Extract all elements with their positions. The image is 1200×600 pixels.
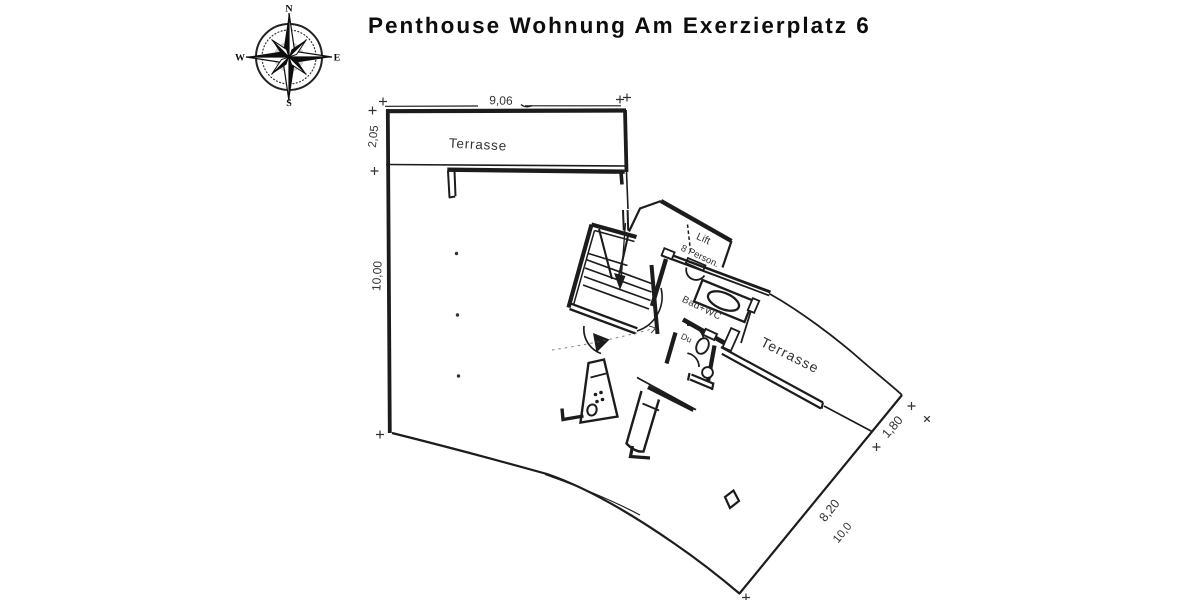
svg-text:Terrasse: Terrasse [758, 334, 822, 377]
svg-text:Bad+WC: Bad+WC [680, 294, 723, 323]
svg-text:Terrasse: Terrasse [449, 135, 508, 153]
svg-text:Penthouse Wohnung Am Exerzierp: Penthouse Wohnung Am Exerzierplatz 6 [368, 13, 871, 38]
svg-text:Du: Du [679, 331, 693, 345]
svg-text:S: S [286, 98, 292, 109]
svg-text:8,20: 8,20 [816, 497, 842, 525]
svg-text:Lift: Lift [694, 231, 712, 248]
svg-text:10,00: 10,00 [369, 260, 385, 291]
svg-text:N: N [285, 4, 293, 15]
svg-text:10,0: 10,0 [831, 521, 854, 546]
svg-text:E: E [334, 53, 341, 64]
svg-text:9,06: 9,06 [489, 93, 513, 108]
svg-text:W: W [235, 53, 245, 64]
svg-text:2,05: 2,05 [367, 125, 381, 149]
